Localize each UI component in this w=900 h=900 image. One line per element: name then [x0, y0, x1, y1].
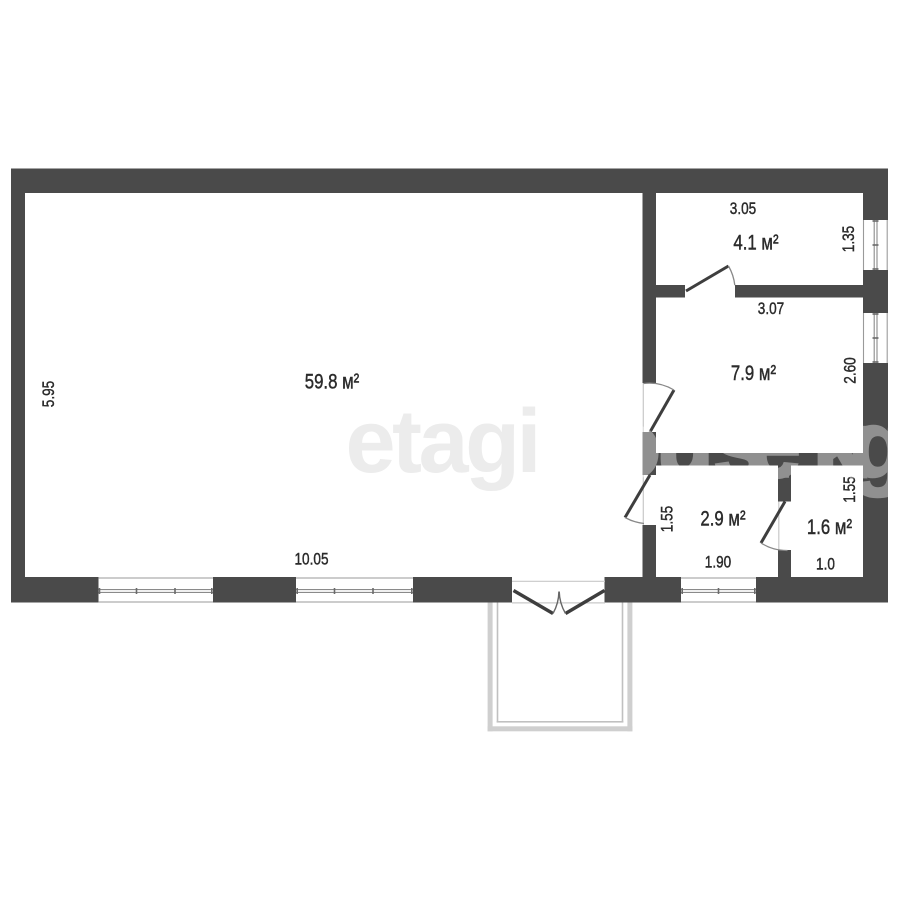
svg-text:g: g	[850, 392, 900, 498]
svg-text:1.55: 1.55	[658, 506, 677, 532]
svg-text:2.9 м²: 2.9 м²	[700, 508, 745, 531]
svg-text:1.0: 1.0	[816, 555, 835, 574]
svg-text:1.35: 1.35	[840, 226, 859, 252]
svg-text:1.6 м²: 1.6 м²	[807, 516, 852, 539]
svg-text:59.8 м²: 59.8 м²	[305, 371, 359, 394]
svg-text:1.90: 1.90	[705, 553, 731, 572]
svg-text:o: o	[603, 392, 661, 498]
svg-text:u: u	[656, 392, 714, 498]
svg-text:2.60: 2.60	[841, 357, 860, 383]
svg-text:5.95: 5.95	[40, 381, 59, 407]
svg-text:3.07: 3.07	[758, 299, 784, 318]
svg-text:3.05: 3.05	[730, 200, 756, 219]
svg-text:etagi: etagi	[346, 392, 539, 492]
svg-text:.: .	[777, 426, 793, 489]
svg-text:7.9 м²: 7.9 м²	[731, 362, 776, 385]
svg-text:e: e	[748, 392, 801, 498]
svg-text:4.1 м²: 4.1 м²	[733, 232, 778, 255]
svg-text:10.05: 10.05	[295, 550, 329, 569]
